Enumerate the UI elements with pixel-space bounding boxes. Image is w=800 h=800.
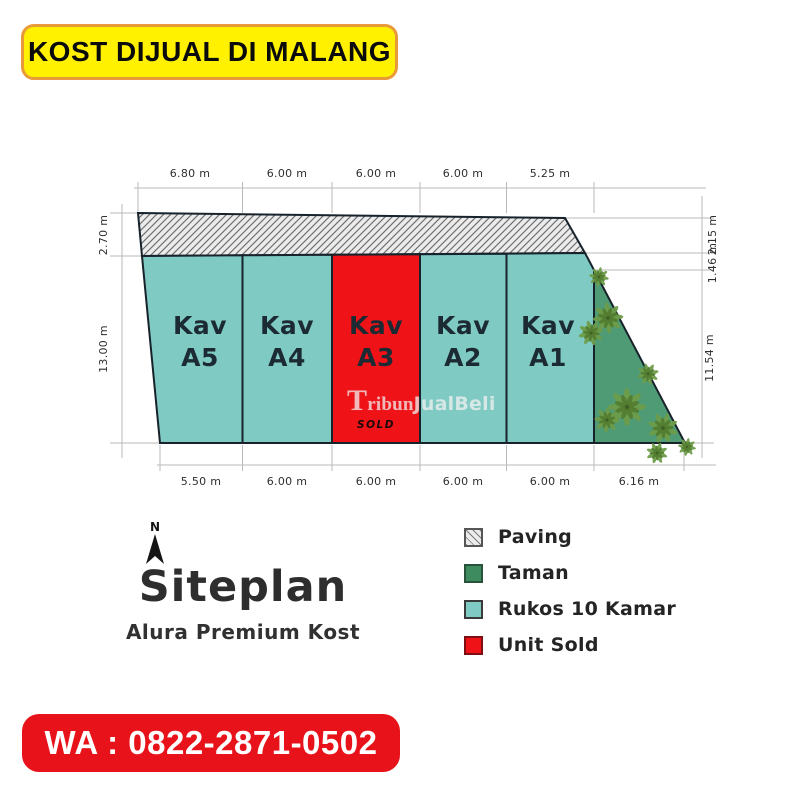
dim-bottom-6: 6.16 m xyxy=(619,475,660,488)
legend-item-taman: Taman xyxy=(464,562,676,584)
sold-tag: SOLD xyxy=(357,419,395,431)
dim-top-5: 5.25 m xyxy=(530,167,571,180)
dim-right-3: 11.54 m xyxy=(703,334,716,382)
legend-label: Paving xyxy=(498,526,572,548)
unit-sold-swatch-icon xyxy=(464,636,483,655)
legend-label: Taman xyxy=(498,562,569,584)
dim-bottom-3: 6.00 m xyxy=(356,475,397,488)
plot-label: Kav xyxy=(173,311,227,340)
north-label: N xyxy=(150,520,160,534)
siteplan-heading: Siteplan xyxy=(118,562,368,612)
plot-label: A1 xyxy=(529,343,567,372)
legend-label: Rukos 10 Kamar xyxy=(498,598,676,620)
siteplan-flyer: KOST DIJUAL DI MALANG xyxy=(0,0,800,800)
dim-bottom-1: 5.50 m xyxy=(181,475,222,488)
dim-bottom-5: 6.00 m xyxy=(530,475,571,488)
paving-swatch-icon xyxy=(464,528,483,547)
north-arrow: N xyxy=(146,520,164,564)
plot-label: Kav xyxy=(349,311,403,340)
plot-label: Kav xyxy=(260,311,314,340)
legend-item-unit-sold: Unit Sold xyxy=(464,634,676,656)
plot-label: A4 xyxy=(268,343,306,372)
plot-label: A2 xyxy=(444,343,482,372)
plot-label: A3 xyxy=(357,343,395,372)
siteplan-subheading: Alura Premium Kost xyxy=(118,620,368,644)
whatsapp-contact-banner: WA : 0822-2871-0502 xyxy=(22,714,400,772)
watermark-part2: JualBeli xyxy=(414,393,496,415)
dim-bottom-4: 6.00 m xyxy=(443,475,484,488)
title-block: Siteplan Alura Premium Kost xyxy=(118,562,368,644)
paving-area xyxy=(138,213,585,256)
legend-label: Unit Sold xyxy=(498,634,599,656)
dim-bottom-2: 6.00 m xyxy=(267,475,308,488)
north-arrow-icon xyxy=(146,534,164,564)
legend-item-rukos: Rukos 10 Kamar xyxy=(464,598,676,620)
dim-right-2: 1.46 m xyxy=(706,243,719,284)
legend-item-paving: Paving xyxy=(464,526,676,548)
dim-left-2: 13.00 m xyxy=(97,325,110,373)
rukos-swatch-icon xyxy=(464,600,483,619)
watermark-part1: Tribun xyxy=(347,384,414,418)
dim-top-1: 6.80 m xyxy=(170,167,211,180)
taman-swatch-icon xyxy=(464,564,483,583)
plot-label: Kav xyxy=(521,311,575,340)
dim-top-3: 6.00 m xyxy=(356,167,397,180)
dim-left-1: 2.70 m xyxy=(97,215,110,256)
dim-top-4: 6.00 m xyxy=(443,167,484,180)
dim-top-2: 6.00 m xyxy=(267,167,308,180)
legend: Paving Taman Rukos 10 Kamar Unit Sold xyxy=(464,526,676,670)
plot-label: A5 xyxy=(181,343,219,372)
watermark: TribunJualBeli xyxy=(347,384,496,418)
plot-label: Kav xyxy=(436,311,490,340)
